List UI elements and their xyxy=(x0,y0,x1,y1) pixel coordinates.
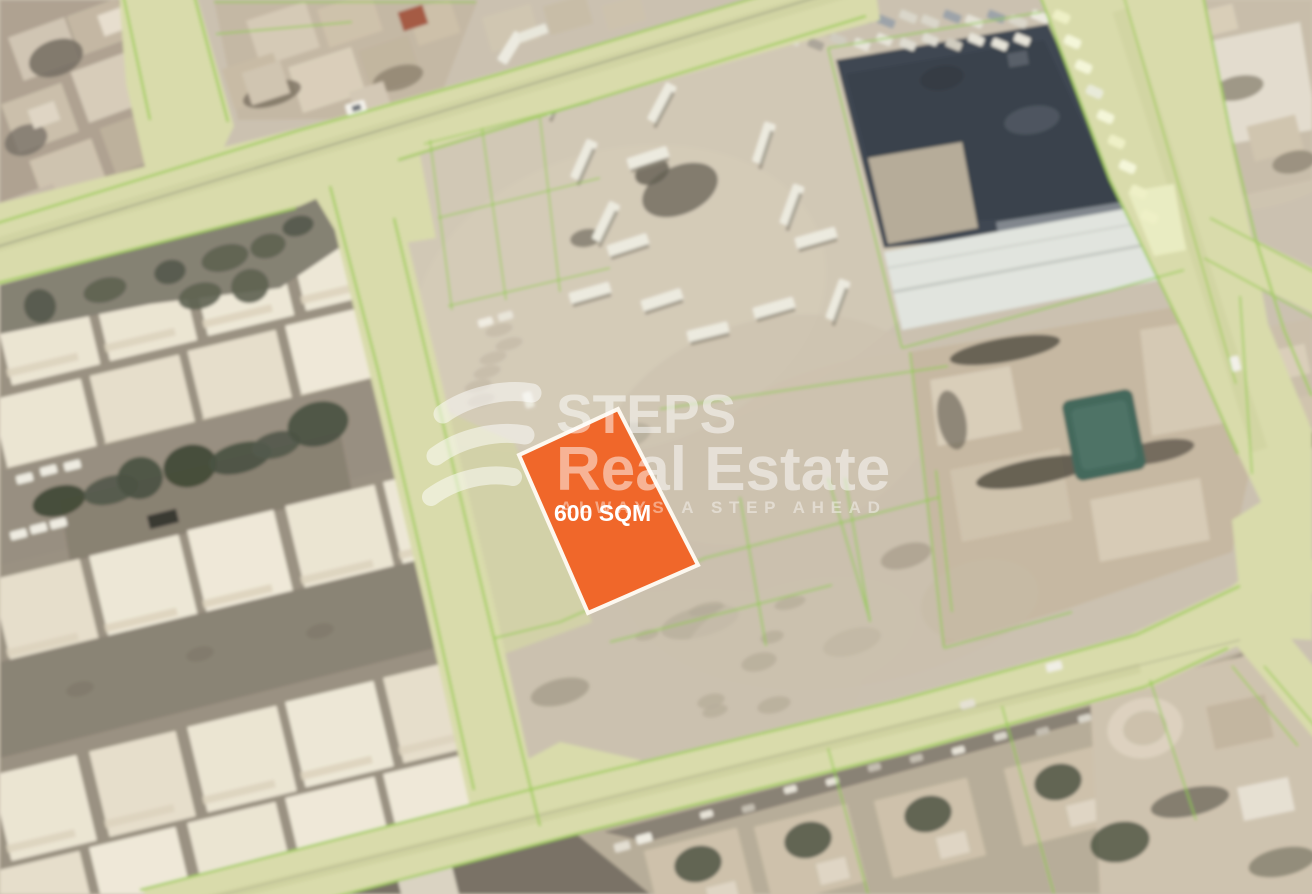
svg-text:Real Estate: Real Estate xyxy=(556,435,890,504)
svg-text:ALWAYS A STEP AHEAD: ALWAYS A STEP AHEAD xyxy=(560,498,887,517)
